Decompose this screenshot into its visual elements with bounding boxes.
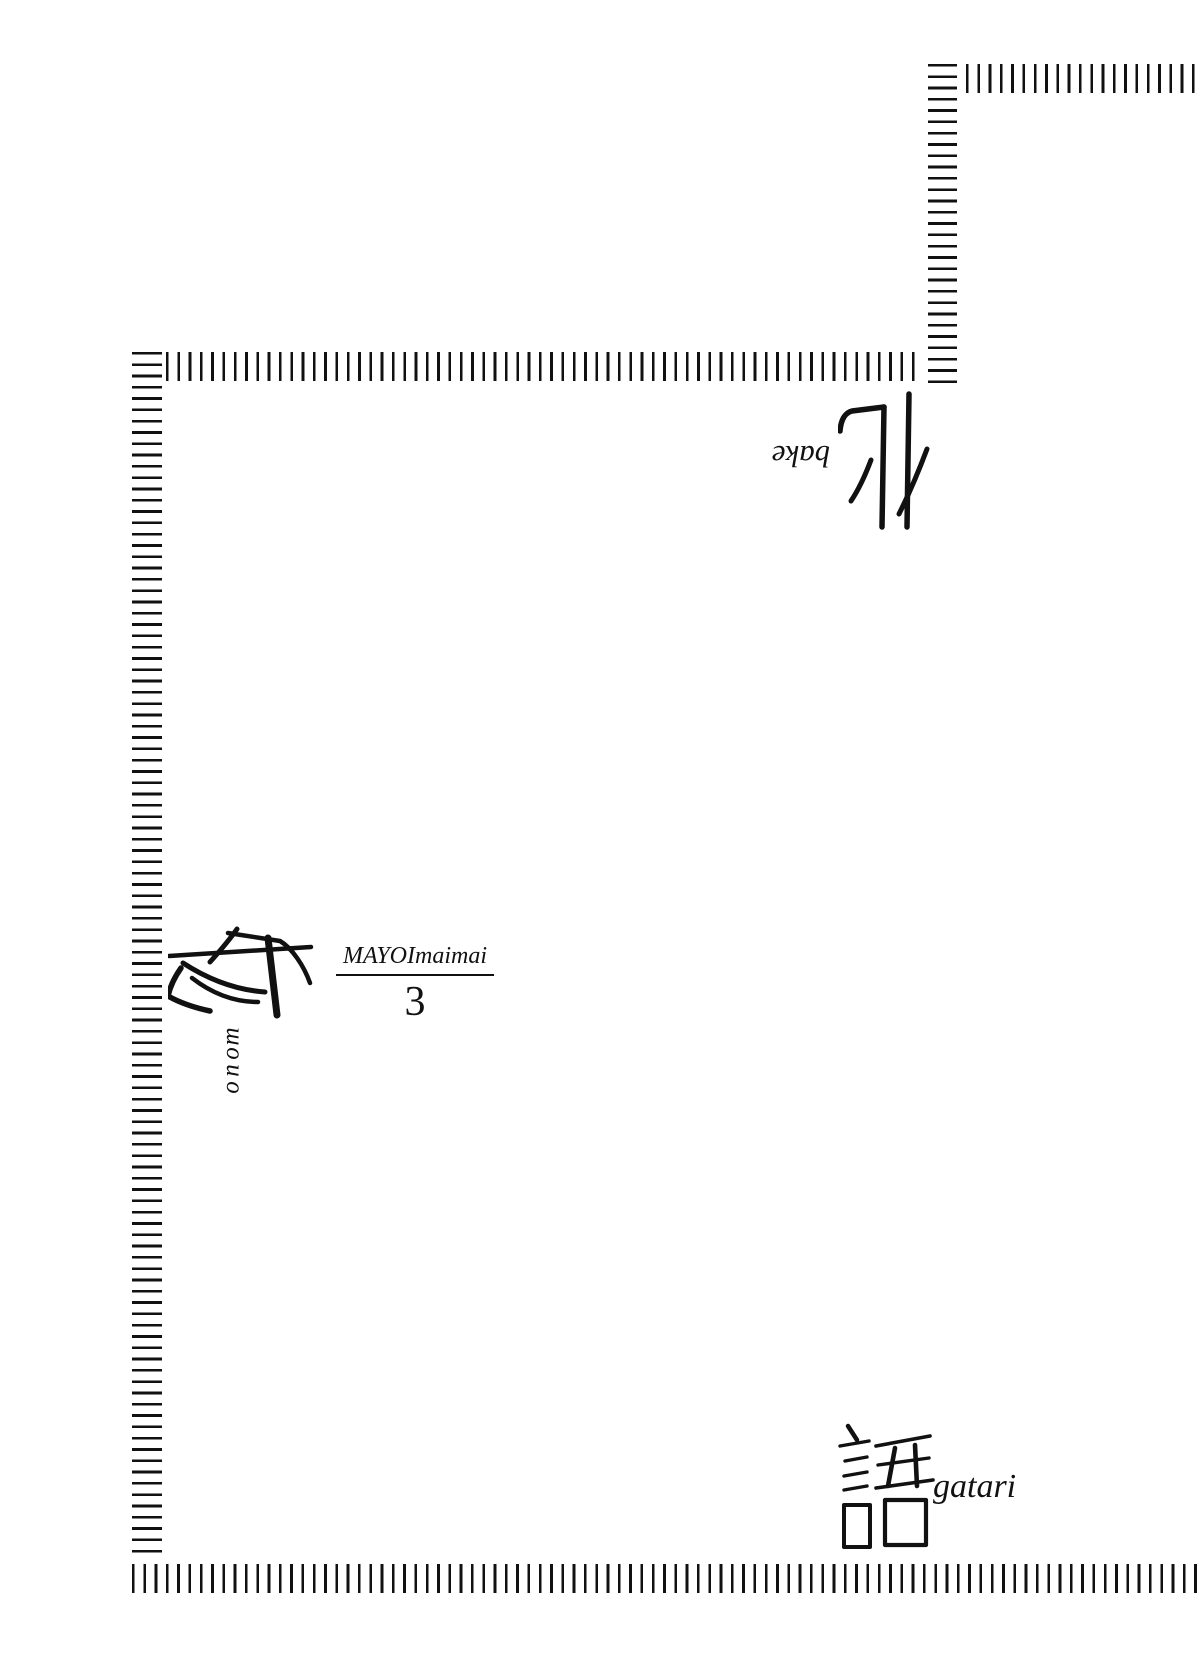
kanji-gatari-icon — [836, 1418, 936, 1550]
border-right-ladder — [928, 64, 957, 385]
chapter-title-romaji: MAYOImaimai — [343, 942, 487, 971]
border-top-right-ticks — [966, 64, 1200, 93]
border-bottom-ticks — [132, 1564, 1200, 1593]
bake-romaji-label: bake — [760, 441, 842, 472]
kanji-bake-icon — [838, 390, 938, 535]
gatari-romaji-label: gatari — [933, 1470, 1016, 1504]
fraction-rule — [336, 974, 494, 977]
border-left-ladder — [132, 352, 162, 1555]
chapter-fraction: MAYOImaimai 3 — [336, 942, 494, 1023]
chapter-number: 3 — [405, 981, 426, 1023]
mono-romaji-label: mono — [214, 1028, 248, 1096]
kanji-mono-icon — [168, 926, 318, 1026]
page: bake mono MAYOImaimai 3 gatari — [0, 0, 1200, 1660]
border-middle-ticks — [166, 352, 920, 381]
